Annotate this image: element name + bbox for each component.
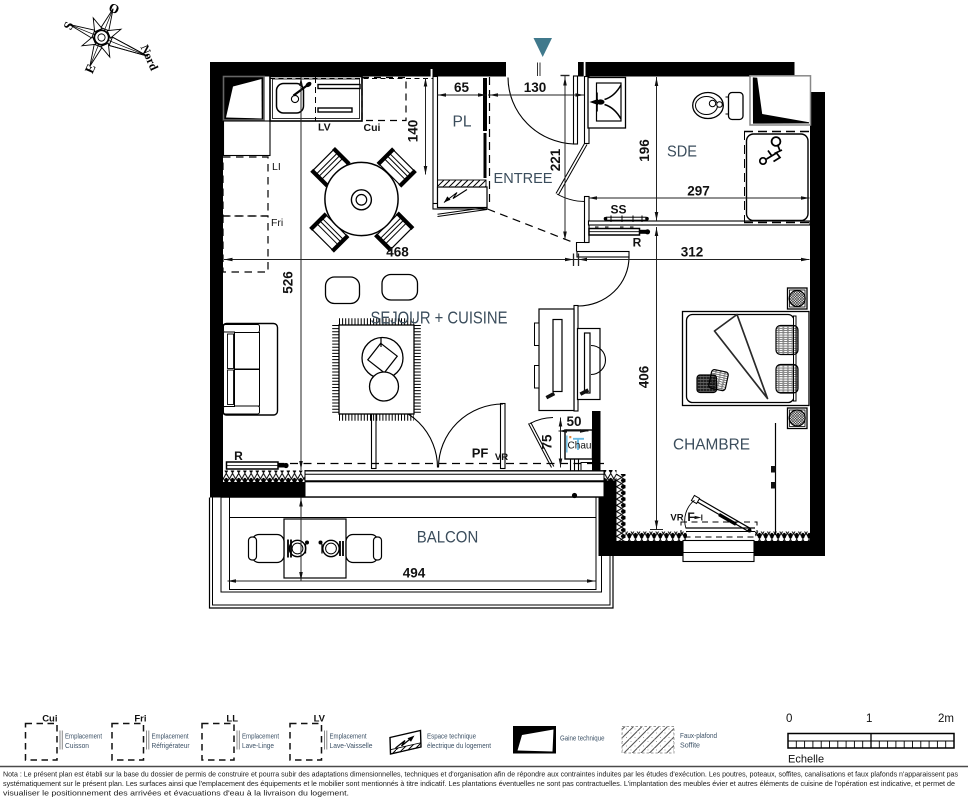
svg-text:SS: SS: [610, 203, 626, 217]
svg-text:Cui: Cui: [42, 714, 57, 725]
svg-text:CHAMBRE: CHAMBRE: [673, 437, 750, 454]
svg-text:0: 0: [786, 713, 792, 725]
svg-text:Lave-Vaisselle: Lave-Vaisselle: [330, 741, 373, 750]
svg-text:systématiquement sur le présen: systématiquement sur le présent plan. Le…: [3, 779, 955, 788]
svg-text:R: R: [234, 449, 243, 463]
svg-text:BALCON: BALCON: [417, 528, 479, 547]
svg-text:Cuisson: Cuisson: [65, 741, 89, 750]
svg-text:494: 494: [403, 566, 426, 581]
svg-text:Emplacement: Emplacement: [242, 732, 279, 741]
svg-text:2m: 2m: [938, 713, 954, 725]
svg-text:Fri: Fri: [271, 217, 283, 229]
svg-text:Emplacement: Emplacement: [152, 732, 189, 741]
svg-text:visualiser le positionnement d: visualiser le positionnement des arrivée…: [3, 789, 349, 798]
svg-text:50: 50: [566, 414, 581, 429]
svg-text:130: 130: [524, 80, 547, 95]
svg-text:électrique du logement: électrique du logement: [427, 741, 491, 750]
svg-text:Emplacement: Emplacement: [330, 732, 367, 741]
svg-text:Réfrigérateur: Réfrigérateur: [152, 741, 190, 750]
svg-text:65: 65: [454, 80, 470, 95]
svg-text:526: 526: [281, 271, 296, 294]
svg-text:LV: LV: [318, 122, 331, 134]
svg-text:ENTREE: ENTREE: [494, 170, 553, 187]
svg-text:LL: LL: [226, 714, 238, 725]
svg-text:Cui: Cui: [364, 122, 381, 134]
svg-text:VR: VR: [495, 452, 508, 463]
svg-text:Espace technique: Espace technique: [427, 732, 476, 741]
svg-text:Echelle: Echelle: [788, 754, 824, 766]
svg-text:221: 221: [548, 148, 563, 171]
svg-text:PL: PL: [453, 114, 472, 131]
svg-text:Gaine technique: Gaine technique: [560, 734, 605, 743]
svg-text:140: 140: [406, 120, 421, 143]
svg-text:LI: LI: [272, 161, 281, 173]
svg-text:F: F: [687, 510, 694, 524]
svg-text:Nota : Le présent plan est éta: Nota : Le présent plan est établi sur la…: [3, 770, 958, 779]
svg-text:Faux-plafond: Faux-plafond: [680, 731, 717, 740]
svg-text:PF: PF: [472, 446, 489, 461]
svg-text:75: 75: [540, 434, 555, 450]
svg-text:SEJOUR + CUISINE: SEJOUR + CUISINE: [371, 308, 508, 328]
svg-text:Lave-Linge: Lave-Linge: [242, 741, 274, 750]
svg-text:Emplacement: Emplacement: [65, 732, 102, 741]
svg-text:Fri: Fri: [134, 714, 146, 725]
svg-text:196: 196: [637, 139, 652, 162]
svg-text:297: 297: [687, 184, 710, 199]
svg-text:406: 406: [637, 365, 652, 388]
svg-text:468: 468: [386, 245, 409, 260]
svg-text:312: 312: [681, 245, 704, 260]
svg-text:Chau: Chau: [568, 440, 592, 452]
svg-text:1: 1: [866, 713, 872, 725]
svg-text:R: R: [633, 236, 642, 250]
svg-text:LV: LV: [314, 714, 326, 725]
svg-text:Soffite: Soffite: [680, 741, 700, 750]
svg-text:SDE: SDE: [667, 144, 697, 161]
svg-text:VR: VR: [670, 513, 683, 524]
